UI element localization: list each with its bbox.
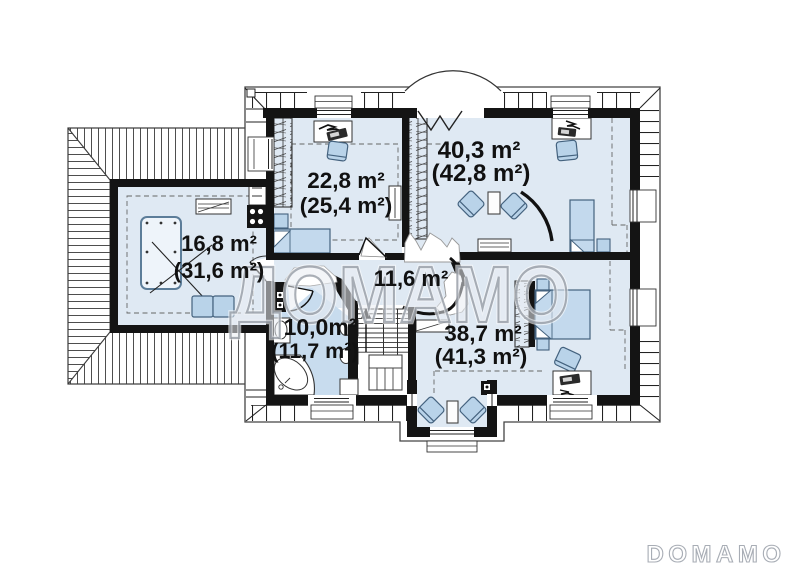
svg-text:(41,3 m²): (41,3 m²) bbox=[435, 344, 528, 369]
svg-text:16,8 m²: 16,8 m² bbox=[181, 231, 257, 256]
svg-text:DOMAMO: DOMAMO bbox=[647, 541, 786, 568]
svg-text:(31,6 m²): (31,6 m²) bbox=[174, 258, 264, 283]
svg-text:22,8 m²: 22,8 m² bbox=[307, 168, 385, 193]
svg-text:10,0m²: 10,0m² bbox=[284, 314, 357, 340]
svg-text:(11,7 m²): (11,7 m²) bbox=[271, 339, 358, 363]
svg-text:38,7 m²: 38,7 m² bbox=[444, 321, 522, 346]
svg-text:(42,8 m²): (42,8 m²) bbox=[432, 160, 531, 187]
svg-text:11,6 m²: 11,6 m² bbox=[374, 266, 449, 291]
svg-text:(25,4 m²): (25,4 m²) bbox=[300, 193, 393, 218]
